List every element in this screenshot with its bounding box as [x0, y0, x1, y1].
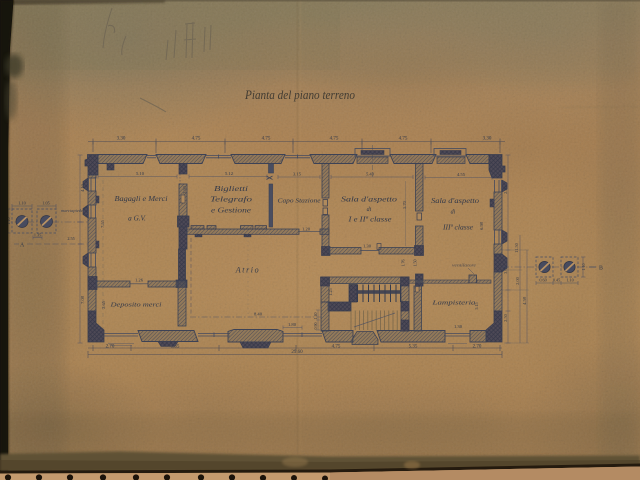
svg-text:4.55: 4.55 [457, 172, 466, 177]
svg-text:1.40: 1.40 [313, 313, 318, 320]
svg-text:1.20: 1.20 [302, 227, 311, 232]
svg-text:4.10: 4.10 [80, 183, 85, 191]
svg-text:4.75: 4.75 [332, 345, 341, 350]
svg-text:3.30: 3.30 [117, 137, 126, 142]
svg-text:5.12: 5.12 [225, 171, 234, 176]
svg-text:di: di [451, 210, 456, 216]
svg-text:2.50: 2.50 [503, 313, 508, 321]
svg-text:Bagagli e Merci: Bagagli e Merci [115, 195, 168, 203]
svg-text:0.60: 0.60 [539, 278, 546, 283]
svg-text:Capo Stazione: Capo Stazione [278, 198, 321, 205]
svg-text:3.30: 3.30 [483, 137, 492, 142]
svg-text:marciapiede: marciapiede [61, 208, 83, 213]
svg-text:3.50: 3.50 [182, 185, 187, 193]
svg-text:3.05: 3.05 [503, 265, 508, 273]
svg-text:4.75: 4.75 [262, 137, 271, 142]
svg-text:29.60: 29.60 [291, 350, 303, 355]
svg-text:Deposito merci: Deposito merci [109, 302, 161, 309]
svg-text:6.98: 6.98 [479, 221, 484, 229]
svg-text:a G.V.: a G.V. [128, 215, 146, 223]
svg-text:7.55: 7.55 [100, 219, 105, 227]
svg-text:1.25: 1.25 [328, 288, 333, 295]
svg-text:5.15: 5.15 [474, 302, 479, 309]
svg-text:Pianta del piano terreno: Pianta del piano terreno [244, 88, 355, 102]
svg-text:4.75: 4.75 [330, 137, 339, 142]
svg-text:1.76: 1.76 [401, 259, 406, 266]
svg-text:Biglietti: Biglietti [214, 185, 248, 193]
svg-text:1.35: 1.35 [34, 233, 41, 238]
svg-text:B: B [599, 266, 603, 272]
svg-text:4.75: 4.75 [399, 137, 408, 142]
svg-text:Sala d'aspetto: Sala d'aspetto [431, 198, 480, 205]
svg-text:5.10: 5.10 [136, 171, 145, 176]
svg-text:1.30: 1.30 [363, 244, 372, 249]
svg-text:I e IIª classe: I e IIª classe [347, 216, 392, 224]
svg-text:2.65: 2.65 [101, 300, 106, 308]
svg-text:4.75: 4.75 [192, 137, 201, 142]
svg-text:1.26: 1.26 [135, 278, 144, 283]
svg-text:2.00: 2.00 [515, 276, 520, 284]
svg-text:8.40: 8.40 [254, 312, 263, 317]
svg-text:5.70: 5.70 [402, 200, 407, 208]
svg-text:2.55: 2.55 [67, 236, 74, 241]
svg-text:0.45: 0.45 [553, 278, 560, 283]
svg-text:11.50: 11.50 [514, 242, 519, 253]
svg-text:4.58: 4.58 [522, 296, 527, 304]
svg-text:5.40: 5.40 [366, 172, 375, 177]
svg-text:1.80: 1.80 [288, 322, 297, 327]
svg-text:Atrio: Atrio [235, 266, 260, 275]
svg-text:1.30: 1.30 [454, 324, 463, 329]
svg-text:ventilatore: ventilatore [452, 263, 476, 268]
svg-text:2.70: 2.70 [473, 345, 482, 350]
svg-text:IIIª classe: IIIª classe [442, 224, 474, 232]
svg-text:Sala d'aspetto: Sala d'aspetto [341, 196, 398, 204]
svg-text:1.10: 1.10 [18, 201, 25, 206]
svg-text:1.05: 1.05 [42, 201, 49, 206]
svg-text:7.08: 7.08 [80, 295, 85, 303]
svg-text:di: di [367, 207, 372, 213]
svg-text:3.15: 3.15 [293, 172, 302, 177]
svg-text:1.10: 1.10 [581, 264, 586, 271]
svg-text:1.10: 1.10 [566, 278, 573, 283]
svg-text:0.90: 0.90 [313, 323, 318, 330]
svg-text:e Gestione: e Gestione [211, 207, 251, 215]
svg-text:Lampisteria: Lampisteria [431, 300, 476, 307]
svg-text:5.35: 5.35 [409, 345, 418, 350]
svg-text:2.50: 2.50 [503, 185, 508, 193]
svg-text:Telegrafo: Telegrafo [210, 196, 253, 204]
svg-text:1.50: 1.50 [413, 259, 418, 266]
